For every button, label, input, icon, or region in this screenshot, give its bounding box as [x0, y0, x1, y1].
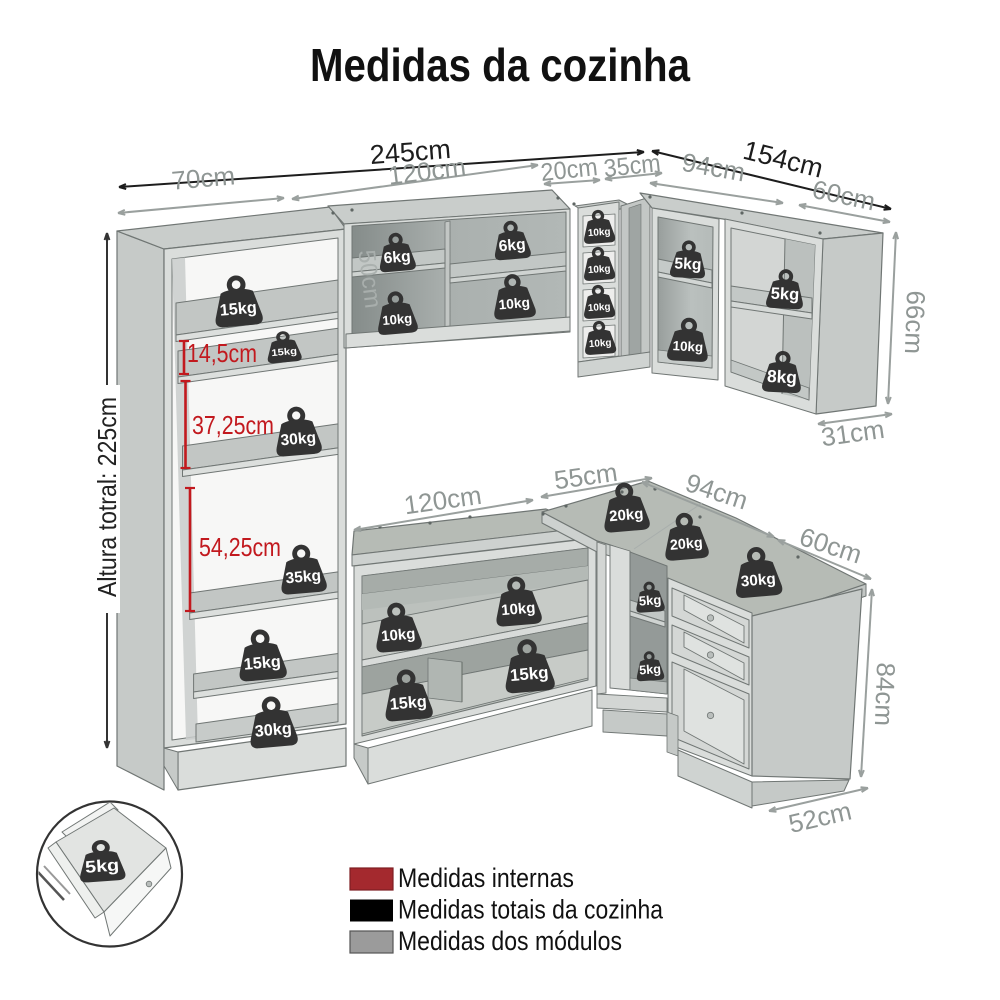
svg-text:14,5cm: 14,5cm — [187, 338, 257, 368]
svg-text:Altura totral: 225cm: Altura totral: 225cm — [92, 397, 122, 597]
svg-text:Medidas da cozinha: Medidas da cozinha — [310, 39, 690, 91]
svg-text:10kg: 10kg — [382, 311, 413, 329]
svg-text:66cm: 66cm — [899, 290, 931, 355]
svg-text:30kg: 30kg — [254, 720, 292, 741]
svg-text:15kg: 15kg — [389, 693, 427, 714]
svg-text:35cm: 35cm — [602, 149, 662, 183]
svg-text:10kg: 10kg — [589, 338, 612, 351]
svg-text:70cm: 70cm — [170, 160, 236, 195]
svg-text:Medidas dos módulos: Medidas dos módulos — [398, 926, 622, 956]
svg-text:15kg: 15kg — [509, 663, 549, 685]
svg-text:8kg: 8kg — [766, 366, 797, 388]
svg-text:20cm: 20cm — [539, 153, 599, 187]
svg-text:5kg: 5kg — [84, 855, 119, 877]
svg-text:30kg: 30kg — [740, 570, 776, 590]
svg-text:10kg: 10kg — [501, 599, 537, 619]
svg-text:37,25cm: 37,25cm — [192, 410, 274, 440]
svg-text:10kg: 10kg — [672, 338, 703, 355]
svg-text:84cm: 84cm — [869, 662, 901, 727]
svg-text:10kg: 10kg — [381, 625, 417, 645]
svg-text:10kg: 10kg — [498, 295, 531, 313]
svg-text:30kg: 30kg — [280, 429, 317, 449]
svg-text:35kg: 35kg — [285, 567, 322, 587]
svg-text:Medidas internas: Medidas internas — [398, 863, 574, 893]
svg-text:Medidas totais da cozinha: Medidas totais da cozinha — [398, 895, 664, 925]
svg-text:5kg: 5kg — [638, 592, 662, 609]
svg-text:20kg: 20kg — [669, 535, 703, 554]
svg-text:5kg: 5kg — [770, 284, 799, 304]
svg-text:6kg: 6kg — [498, 236, 526, 255]
svg-text:6kg: 6kg — [383, 248, 411, 267]
svg-text:10kg: 10kg — [588, 302, 611, 315]
svg-text:15kg: 15kg — [219, 299, 257, 320]
svg-text:10kg: 10kg — [588, 264, 611, 277]
svg-text:15kg: 15kg — [243, 653, 281, 674]
svg-text:20kg: 20kg — [609, 505, 645, 525]
svg-text:5kg: 5kg — [674, 255, 702, 273]
svg-text:54,25cm: 54,25cm — [199, 532, 281, 562]
svg-text:5kg: 5kg — [639, 662, 662, 677]
svg-text:10kg: 10kg — [588, 227, 611, 240]
